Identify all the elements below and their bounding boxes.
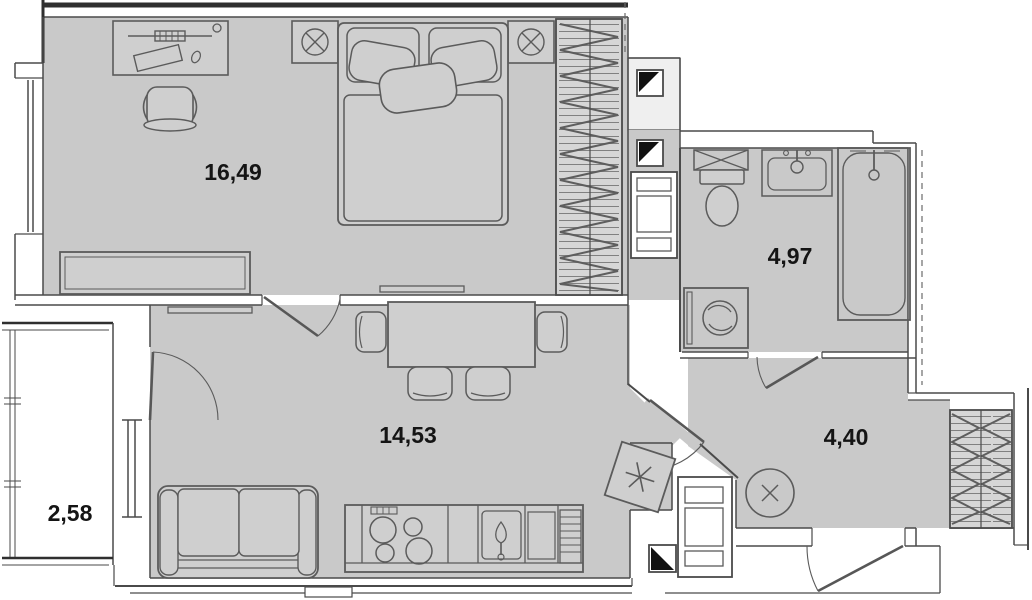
floor-plan: 16,49 14,53 4,97 4,40 2,58 bbox=[0, 0, 1032, 600]
nightstand-right bbox=[508, 21, 554, 63]
sofa-cushion bbox=[239, 489, 299, 556]
sofa bbox=[158, 486, 318, 578]
office-chair bbox=[144, 87, 197, 131]
wardrobe-bedroom bbox=[556, 19, 622, 295]
hall-wardrobe bbox=[950, 410, 1012, 528]
balcony-window-unit bbox=[122, 420, 142, 517]
room-label-balcony: 2,58 bbox=[48, 500, 93, 526]
room-label-bedroom: 16,49 bbox=[204, 159, 262, 185]
sofa-armrest bbox=[298, 490, 316, 575]
desk bbox=[113, 21, 228, 75]
sofa-armrest bbox=[160, 490, 178, 575]
duct-riser-upper bbox=[631, 172, 677, 258]
kitchen-vent-box bbox=[649, 545, 676, 572]
dining-table bbox=[388, 302, 535, 367]
room-label-living: 14,53 bbox=[379, 422, 437, 448]
nightstand-left bbox=[292, 21, 338, 63]
tv-bedroom bbox=[380, 286, 464, 292]
room-label-hallway: 4,40 bbox=[824, 424, 869, 450]
tv-living bbox=[168, 307, 252, 313]
sofa-cushion bbox=[178, 489, 239, 556]
entrance-door bbox=[807, 546, 903, 591]
double-bed bbox=[338, 23, 508, 225]
bedroom-window bbox=[28, 80, 33, 232]
vent-box-2 bbox=[637, 140, 663, 166]
balcony-glazing bbox=[4, 330, 21, 558]
kitchen-counter bbox=[345, 505, 583, 572]
boundary-pillar bbox=[305, 587, 352, 597]
duct-riser-lower bbox=[678, 477, 732, 577]
blanket bbox=[344, 95, 502, 221]
vent-box-1 bbox=[637, 70, 663, 96]
room-label-bathroom: 4,97 bbox=[768, 243, 813, 269]
dresser bbox=[60, 252, 250, 294]
